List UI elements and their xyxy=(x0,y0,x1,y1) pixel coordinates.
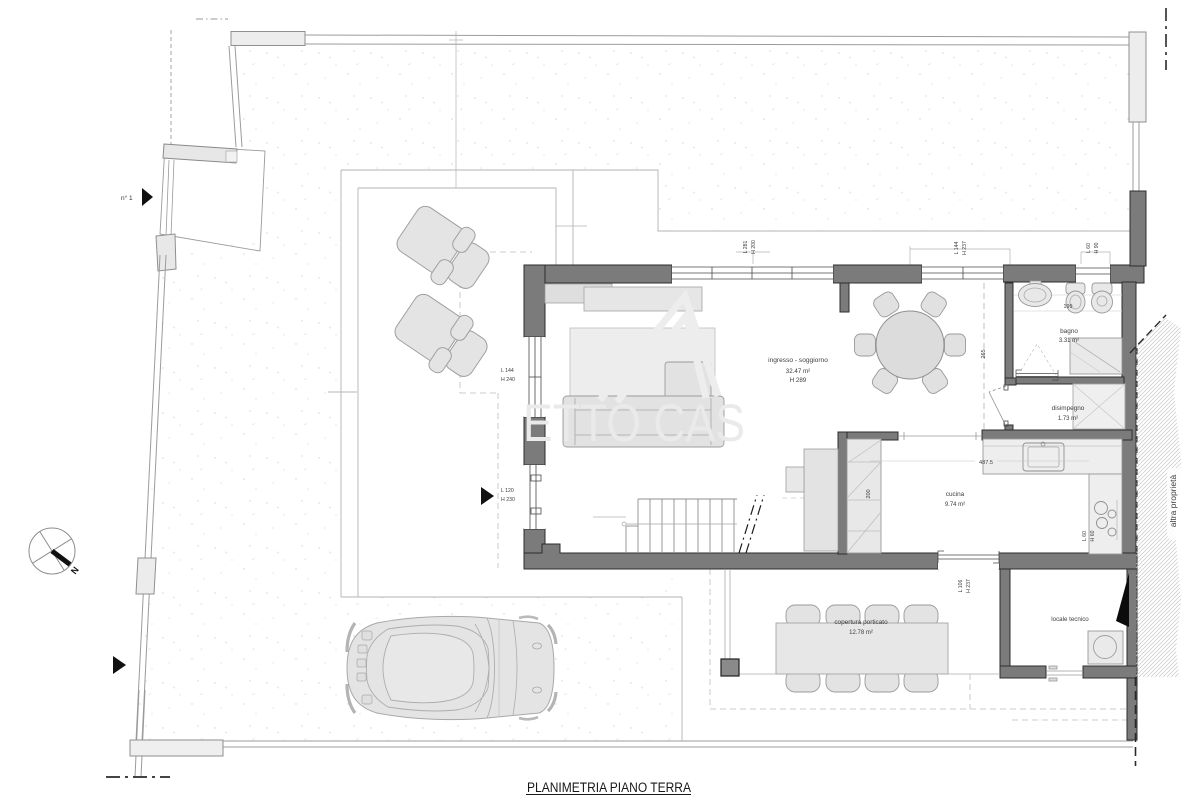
svg-text:487.5: 487.5 xyxy=(979,460,993,466)
svg-text:199: 199 xyxy=(1064,304,1073,310)
svg-text:L 106: L 106 xyxy=(958,579,964,592)
svg-text:200: 200 xyxy=(866,489,872,498)
svg-text:1.73 m²: 1.73 m² xyxy=(1058,416,1078,422)
svg-text:3.31 m²: 3.31 m² xyxy=(1059,338,1079,344)
svg-text:L 281: L 281 xyxy=(743,240,749,253)
svg-text:locale tecnico: locale tecnico xyxy=(1051,616,1089,623)
svg-text:H 230: H 230 xyxy=(501,497,515,503)
svg-text:L 144: L 144 xyxy=(501,368,514,374)
svg-text:n° 1: n° 1 xyxy=(121,194,133,202)
svg-text:ETTO CAS: ETTO CAS xyxy=(523,394,745,453)
svg-text:32.47 m²: 32.47 m² xyxy=(786,368,810,375)
svg-text:H 289: H 289 xyxy=(790,377,807,384)
svg-text:L 120: L 120 xyxy=(501,488,514,494)
svg-text:9.74 m²: 9.74 m² xyxy=(945,502,965,508)
svg-text:12.78 m²: 12.78 m² xyxy=(849,630,873,636)
svg-text:ingresso - soggiorno: ingresso - soggiorno xyxy=(768,357,828,364)
svg-text:H 237: H 237 xyxy=(966,579,972,593)
svg-text:H 60: H 60 xyxy=(1090,530,1096,541)
svg-text:L 144: L 144 xyxy=(954,241,960,254)
svg-text:L 60: L 60 xyxy=(1086,243,1092,253)
svg-text:H 237: H 237 xyxy=(962,241,968,255)
svg-text:265: 265 xyxy=(981,349,987,358)
svg-text:H 200: H 200 xyxy=(751,240,757,254)
svg-text:L 60: L 60 xyxy=(1082,531,1088,541)
svg-text:H 90: H 90 xyxy=(1094,242,1100,253)
svg-text:PLANIMETRIA PIANO TERRA: PLANIMETRIA PIANO TERRA xyxy=(527,780,691,795)
svg-text:copertura porticato: copertura porticato xyxy=(834,619,888,626)
svg-text:altra proprietà: altra proprietà xyxy=(1168,475,1178,528)
svg-text:H 240: H 240 xyxy=(501,377,515,383)
svg-text:disimpegno: disimpegno xyxy=(1052,405,1085,412)
svg-text:cucina: cucina xyxy=(946,491,965,498)
svg-text:bagno: bagno xyxy=(1060,328,1078,335)
